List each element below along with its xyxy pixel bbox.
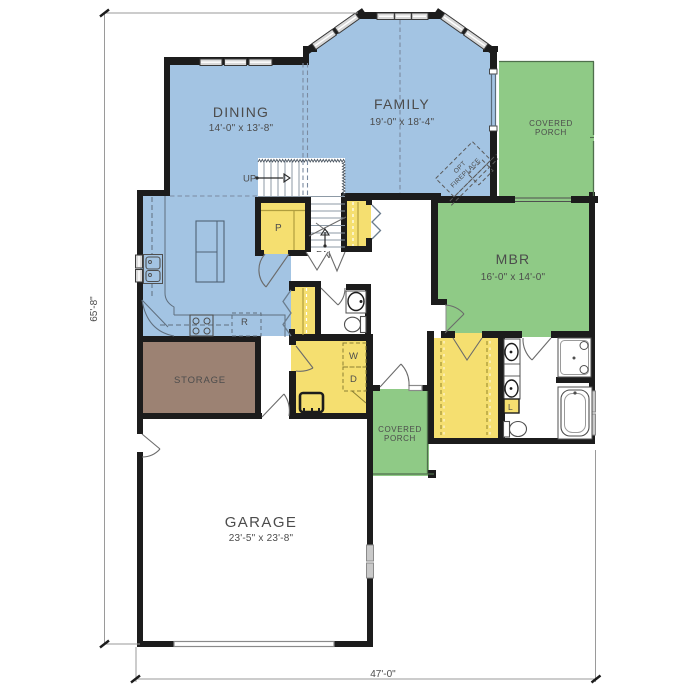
svg-text:23'-5" x 23'-8": 23'-5" x 23'-8" [229, 533, 294, 544]
svg-text:MBR: MBR [496, 251, 531, 267]
svg-text:16'-0" x 14'-0": 16'-0" x 14'-0" [481, 272, 546, 283]
svg-text:P: P [275, 223, 282, 234]
svg-text:L: L [508, 402, 513, 412]
svg-text:FAMILY: FAMILY [374, 96, 430, 112]
svg-text:UP: UP [243, 174, 256, 185]
svg-text:COVERED: COVERED [378, 425, 422, 434]
svg-text:R: R [241, 317, 248, 328]
svg-text:GARAGE: GARAGE [225, 514, 298, 531]
svg-text:STORAGE: STORAGE [174, 375, 226, 386]
svg-text:D: D [350, 374, 357, 385]
svg-text:DINING: DINING [213, 104, 269, 120]
svg-text:14'-0" x 13'-8": 14'-0" x 13'-8" [209, 123, 274, 134]
svg-text:COVERED: COVERED [529, 119, 573, 128]
svg-text:PORCH: PORCH [384, 434, 416, 443]
svg-text:PORCH: PORCH [535, 128, 567, 137]
svg-text:47'-0": 47'-0" [370, 669, 396, 680]
svg-text:W: W [349, 351, 358, 362]
svg-text:65'-8": 65'-8" [89, 296, 100, 322]
svg-text:19'-0" x 18'-4": 19'-0" x 18'-4" [370, 117, 435, 128]
